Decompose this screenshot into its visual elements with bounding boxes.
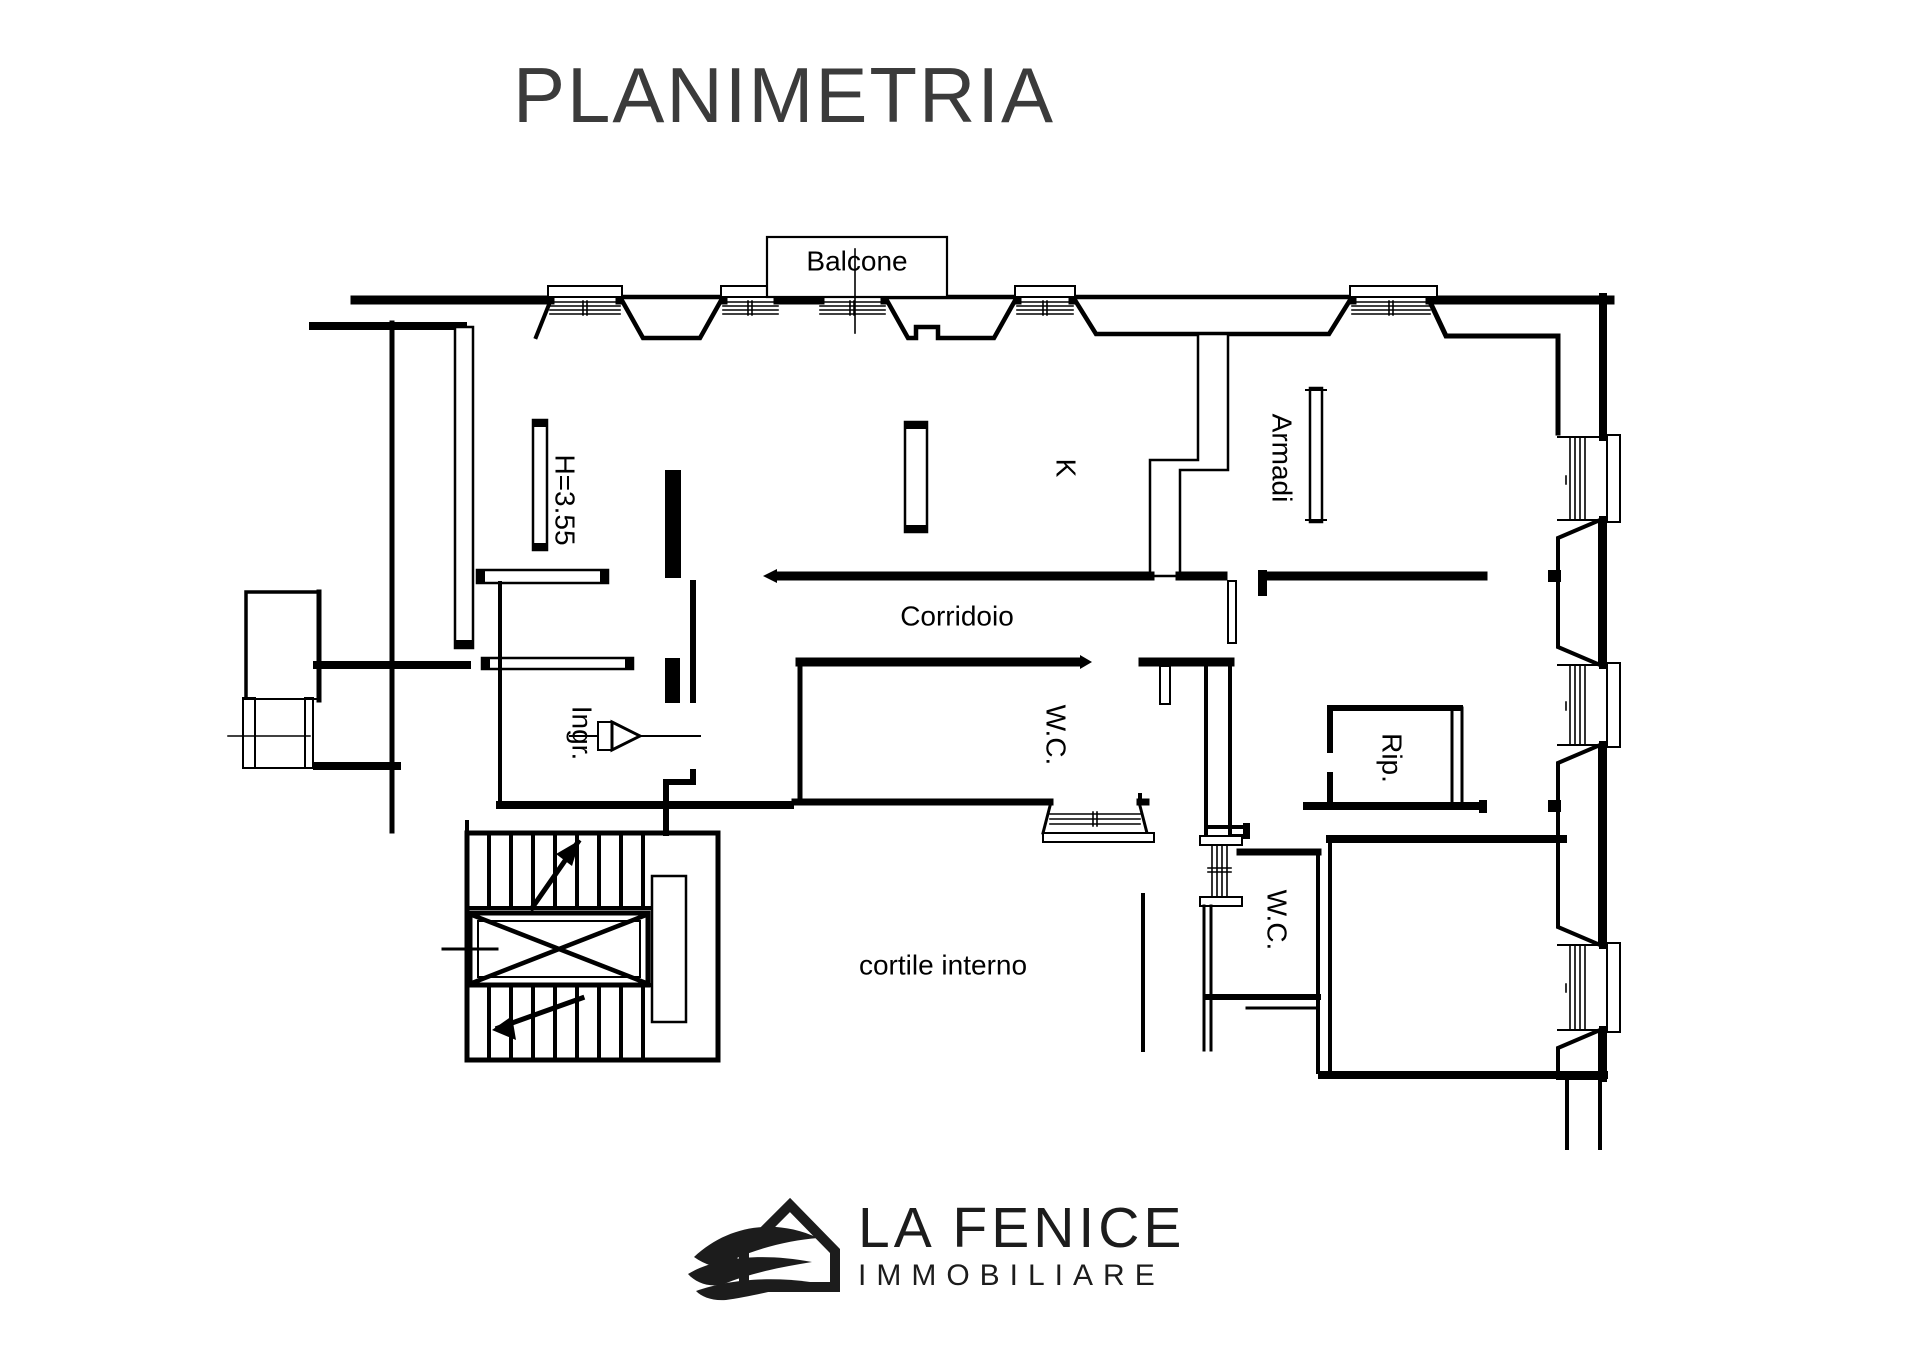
room-label-cortile: cortile interno bbox=[859, 950, 1027, 981]
room-label-rip: Rip. bbox=[1377, 733, 1408, 783]
logo-house-wing-icon bbox=[688, 1205, 835, 1300]
elevator-icon bbox=[443, 913, 648, 985]
floor-plan bbox=[228, 237, 1620, 1148]
wc-window bbox=[1043, 806, 1154, 842]
logo-subtitle: IMMOBILIARE bbox=[858, 1259, 1165, 1292]
open-door-leaf bbox=[1228, 581, 1236, 643]
wardrobe-icon bbox=[1306, 388, 1326, 522]
stair-arrow-down bbox=[492, 998, 582, 1040]
room-label-kitchen: K bbox=[1051, 459, 1082, 478]
floor-plan-page: PLANIMETRIA bbox=[0, 0, 1920, 1357]
interior-walls-upper bbox=[455, 327, 1326, 648]
open-door-leaf bbox=[1160, 666, 1170, 704]
entrance-walls bbox=[500, 583, 790, 833]
pilaster-bar bbox=[905, 422, 927, 532]
room-label-armadi: Armadi bbox=[1267, 414, 1298, 503]
glazed-door bbox=[1200, 836, 1242, 906]
room-label-height: H=3.55 bbox=[550, 454, 581, 545]
room-label-wc-bottom: W.C. bbox=[1262, 890, 1293, 951]
top-exterior-wall bbox=[355, 297, 1610, 433]
left-window bbox=[228, 698, 319, 768]
room-label-balcone: Balcone bbox=[806, 246, 907, 277]
page-title: PLANIMETRIA bbox=[513, 51, 1055, 139]
pilaster-bar bbox=[533, 420, 547, 550]
left-exterior-walls bbox=[246, 323, 467, 831]
wc-top-walls bbox=[795, 662, 1250, 842]
agency-logo: LA FENICE IMMOBILIARE bbox=[688, 1196, 1185, 1300]
corridor-walls bbox=[477, 569, 1483, 704]
logo-name: LA FENICE bbox=[858, 1196, 1185, 1260]
room-label-wc-top: W.C. bbox=[1041, 705, 1072, 766]
room-labels: Balcone H=3.55 K Armadi Corridoio Ingr. … bbox=[550, 246, 1408, 981]
planimetria-drawing: PLANIMETRIA bbox=[0, 0, 1920, 1357]
room-label-ingresso: Ingr. bbox=[567, 706, 598, 760]
room-label-corridoio: Corridoio bbox=[900, 601, 1014, 632]
